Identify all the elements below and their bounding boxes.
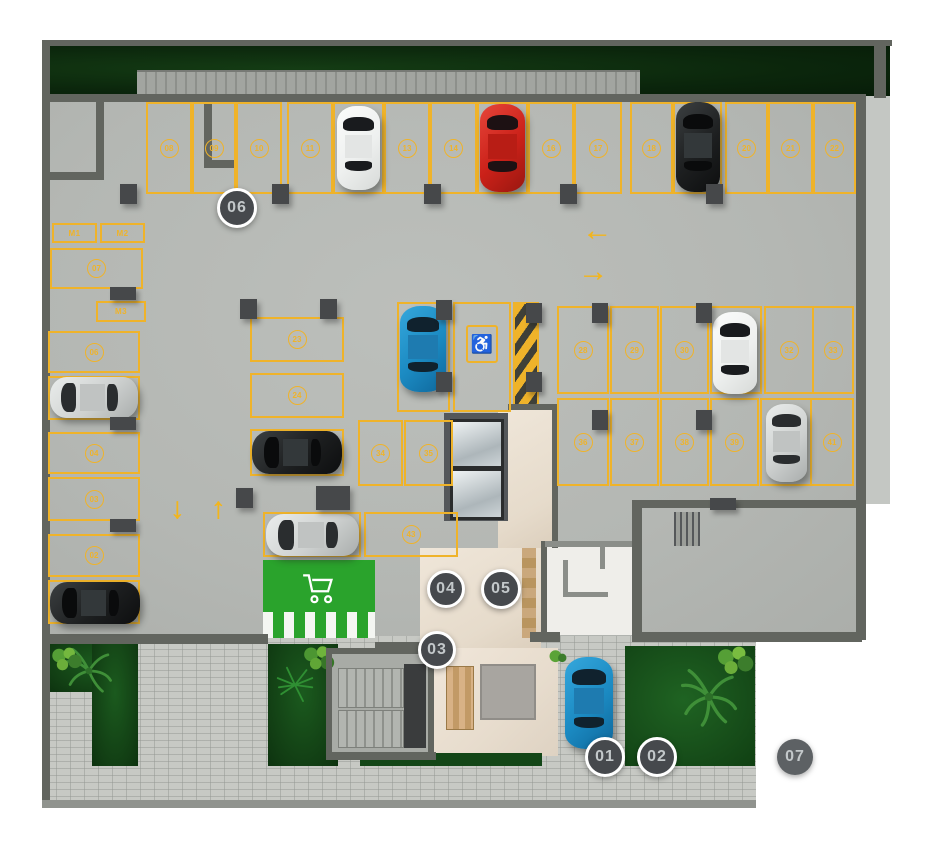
marker-03[interactable]: 03 [418,631,456,669]
parking-spot-23: 23 [250,317,344,362]
spot-number: 38 [675,433,694,452]
wall [48,634,268,644]
elevator-cab [450,419,504,469]
bush [50,644,84,674]
car-red [480,104,525,192]
wall [48,94,860,102]
small-stair [674,512,700,546]
car-roof [408,335,437,359]
car-windshield [720,323,751,337]
wall [96,96,104,178]
parking-spot-18: 18 [630,102,673,194]
pillar [436,372,452,392]
entry-door [446,666,474,730]
parking-spot-41: 41 [810,398,854,486]
spot-number: 09 [205,139,224,158]
car-roof [684,133,712,158]
parking-spot-M1: M1 [52,223,97,243]
pillar [272,184,289,204]
parking-spot-33: 33 [812,306,854,394]
car-rear-window [574,717,605,728]
car-rear-window [408,362,437,372]
service-rooms [547,543,632,635]
spot-number: 34 [371,444,390,463]
pillar [696,410,712,430]
spot-number: M1 [68,229,80,238]
spot-number: 30 [675,341,694,360]
car-silver [266,514,359,556]
cart-bay-green-zone [263,560,375,638]
wall [42,800,756,808]
bush [714,644,756,678]
parking-floor-plan: 080910111314161718202122M1M207M306040302… [0,0,933,843]
spot-number: M2 [116,229,128,238]
parking-spot-M2: M2 [100,223,145,243]
parking-spot-02: 02 [48,534,140,577]
car-rear-window [107,384,118,410]
pillar [120,184,137,204]
spot-number: M3 [115,307,127,316]
wall [545,541,641,547]
car-rear-window [684,161,712,172]
accessible-parking-sign: ♿ [466,325,498,363]
parking-spot-10: 10 [236,102,282,194]
car-roof [283,439,308,467]
traffic-arrow: ↓ [170,494,185,524]
spot-number: 08 [160,139,179,158]
spot-number: 41 [823,433,842,452]
car-windshield [62,588,77,617]
spot-number: 07 [87,259,106,278]
spot-number: 18 [642,139,661,158]
spot-number: 22 [825,139,844,158]
parking-spot-22: 22 [813,102,856,194]
spot-number: 20 [737,139,756,158]
parking-spot-11: 11 [287,102,333,194]
parking-spot-03: 03 [48,477,140,521]
car-windshield [407,317,439,332]
cart-icon [299,572,339,606]
car-windshield [264,437,279,467]
marker-07[interactable]: 07 [777,739,813,775]
car-roof [574,688,605,714]
car-roof [345,135,373,159]
wall [632,632,744,642]
parking-spot-13: 13 [384,102,430,194]
wall [744,632,862,642]
wall [600,541,605,569]
car-rear-window [109,590,120,617]
pillar [110,417,136,430]
spot-number: 28 [574,341,593,360]
pillar [424,184,441,204]
marker-02[interactable]: 02 [637,737,677,777]
car-windshield [343,117,373,131]
spot-number: 06 [85,343,104,362]
entry-tile-mat [480,664,536,720]
spot-number: 24 [288,386,307,405]
stair-landing [404,664,426,748]
wall [48,172,104,180]
car-windshield [683,114,714,129]
parking-spot-14: 14 [430,102,477,194]
car-rear-window [311,439,322,467]
parking-spot-35: 35 [404,420,453,486]
traffic-arrow: ← [582,216,612,246]
parking-spot-24: 24 [250,373,344,418]
parking-spot-43: 43 [364,512,458,557]
spot-number: 14 [444,139,463,158]
car-rear-window [488,161,517,172]
spot-number: 02 [85,546,104,565]
parking-spot-37: 37 [610,398,659,486]
traffic-arrow: ↑ [211,494,226,524]
spot-number: 21 [781,139,800,158]
car-black [252,431,342,474]
car-white [337,106,380,190]
wall [42,40,892,46]
spot-number: 17 [589,139,608,158]
spot-number: 36 [574,433,593,452]
pillar [696,303,712,323]
marker-04[interactable]: 04 [427,570,465,608]
wall [563,560,568,596]
parking-spot-34: 34 [358,420,403,486]
parking-spot-32: 32 [764,306,814,394]
wall [874,40,886,98]
spot-number: 29 [625,341,644,360]
spot-number: 04 [85,444,104,463]
spot-number: 37 [625,433,644,452]
wall [856,94,866,640]
spot-number: 03 [85,490,104,509]
wall [563,592,608,597]
car-black [50,582,140,624]
side-walkway [866,96,890,504]
spot-number: 32 [780,341,799,360]
parking-spot-04: 04 [48,432,140,474]
pillar [706,184,723,204]
car-roof [721,340,749,363]
car-black [676,102,720,192]
spot-number: 33 [824,341,843,360]
parking-spot-29: 29 [610,306,659,394]
parking-spot-09: 09 [192,102,236,194]
wall [632,500,642,640]
parking-spot-06: 06 [48,331,140,373]
parking-spot-21: 21 [768,102,813,194]
wall [326,648,332,760]
pillar [436,300,452,320]
car-roof [773,431,799,453]
pillar [236,488,253,508]
car-blue [565,657,613,749]
car-roof [488,134,517,159]
pillar [710,498,736,510]
car-silver [766,404,807,482]
spot-number: 10 [250,139,269,158]
wall [42,40,50,808]
car-rear-window [721,365,749,375]
pillar [316,486,350,510]
parking-spot-16: 16 [528,102,574,194]
car-rear-window [345,161,373,171]
wall [541,541,547,639]
spot-number: 39 [725,433,744,452]
car-rear-window [773,455,799,464]
spot-number: 35 [419,444,438,463]
traffic-arrow: → [578,257,608,287]
wall [508,404,558,410]
pillar [320,299,337,319]
wall [640,500,858,508]
car-silver [50,377,138,418]
car-roof [298,522,324,549]
pillar [110,519,136,532]
marker-06[interactable]: 06 [217,188,257,228]
crosswalk-stripes [263,612,375,638]
car-roof [80,384,105,410]
parking-spot-07: 07 [50,248,143,289]
parking-spot-08: 08 [146,102,192,194]
pillar [240,299,257,319]
elevator-cab [450,468,504,520]
pillar [526,303,542,323]
spot-number: 13 [398,139,417,158]
car-windshield [772,414,801,427]
car-roof [81,590,106,617]
wheelchair-icon: ♿ [471,334,493,355]
marker-01[interactable]: 01 [585,737,625,777]
spot-number: 23 [288,330,307,349]
stair-flight [338,710,404,748]
pillar [560,184,577,204]
marker-05[interactable]: 05 [481,569,521,609]
pillar [110,287,136,300]
pillar [592,410,608,430]
car-windshield [61,383,76,412]
stair-flight [338,668,404,708]
spot-number: 11 [301,139,320,158]
parking-spot-20: 20 [725,102,768,194]
parking-spot-17: 17 [574,102,622,194]
car-windshield [278,520,294,549]
car-white [713,312,757,394]
wood-panel-wall [522,548,536,638]
car-windshield [487,115,519,130]
parking-spot-39: 39 [710,398,759,486]
car-windshield [572,669,606,685]
pillar [592,303,608,323]
parking-spot: ♿ [453,302,511,412]
spot-number: 43 [402,525,421,544]
car-rear-window [326,522,337,549]
spot-number: 16 [542,139,561,158]
parking-spot-M3: M3 [96,301,146,322]
wall [326,752,436,760]
pillar [526,372,542,392]
